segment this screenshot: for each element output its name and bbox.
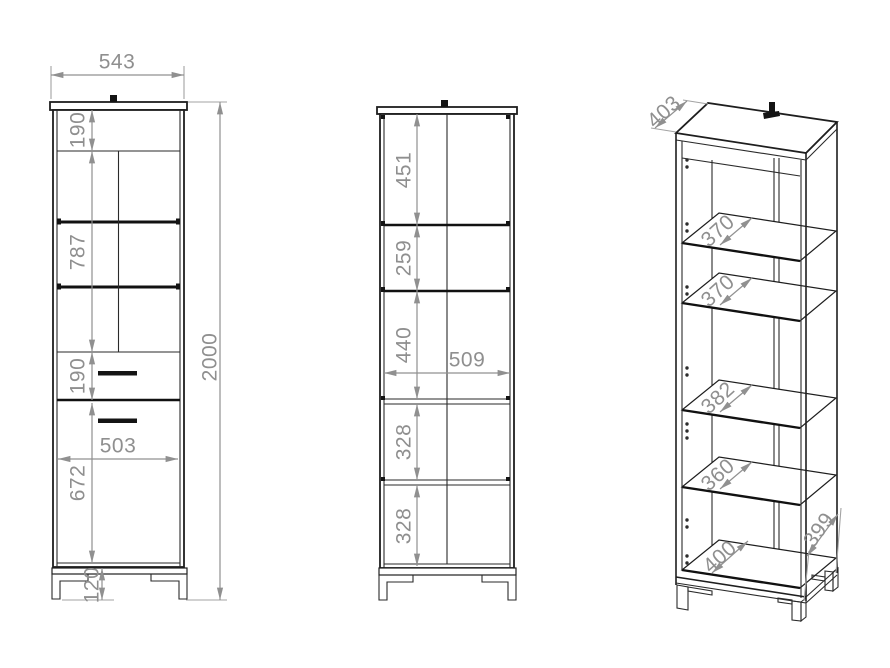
top-panel (676, 103, 837, 153)
interior-view: 451 259 440 328 328 509 (377, 100, 517, 600)
dim-section-1: 451 (393, 152, 416, 189)
dim-leg-height: 120 (81, 567, 104, 604)
dim-drawer-height: 190 (67, 358, 90, 395)
dim-section-4: 328 (393, 424, 416, 461)
dim-section-2: 259 (393, 240, 416, 277)
drawer-handle (98, 371, 137, 376)
dim-top-section: 190 (67, 112, 90, 149)
metal-base-front (52, 568, 187, 599)
technical-drawing-canvas: 543 2000 190 787 190 672 503 120 (0, 0, 890, 668)
dim-top-depth: 403 (643, 91, 686, 133)
top-handle (110, 95, 117, 102)
top-panel (377, 107, 517, 114)
perspective-view: 370 370 382 360 400 (643, 91, 841, 621)
front-view-cabinet-outline (50, 95, 187, 599)
top-handle (763, 102, 780, 119)
cabinet-drawing-svg: 543 2000 190 787 190 672 503 120 (0, 0, 890, 668)
door-handle (98, 419, 137, 424)
perspective-depth-dimensions: 403 399 (643, 91, 841, 601)
dim-section-5: 328 (393, 508, 416, 545)
dim-glass-section: 787 (67, 234, 90, 271)
dim-total-height: 2000 (199, 333, 222, 382)
top-panel (50, 102, 187, 110)
front-view: 543 2000 190 787 190 672 503 120 (50, 51, 227, 604)
metal-base-interior (379, 568, 516, 600)
dim-inner-width: 509 (449, 349, 486, 372)
dim-section-3: 440 (393, 327, 416, 364)
dim-door-width: 503 (100, 435, 137, 458)
top-handle (441, 100, 448, 107)
dim-width-top: 543 (99, 51, 136, 74)
dim-side-depth: 399 (799, 508, 839, 551)
shelf-pin-holes (685, 158, 688, 564)
dim-door-height: 672 (67, 465, 90, 502)
